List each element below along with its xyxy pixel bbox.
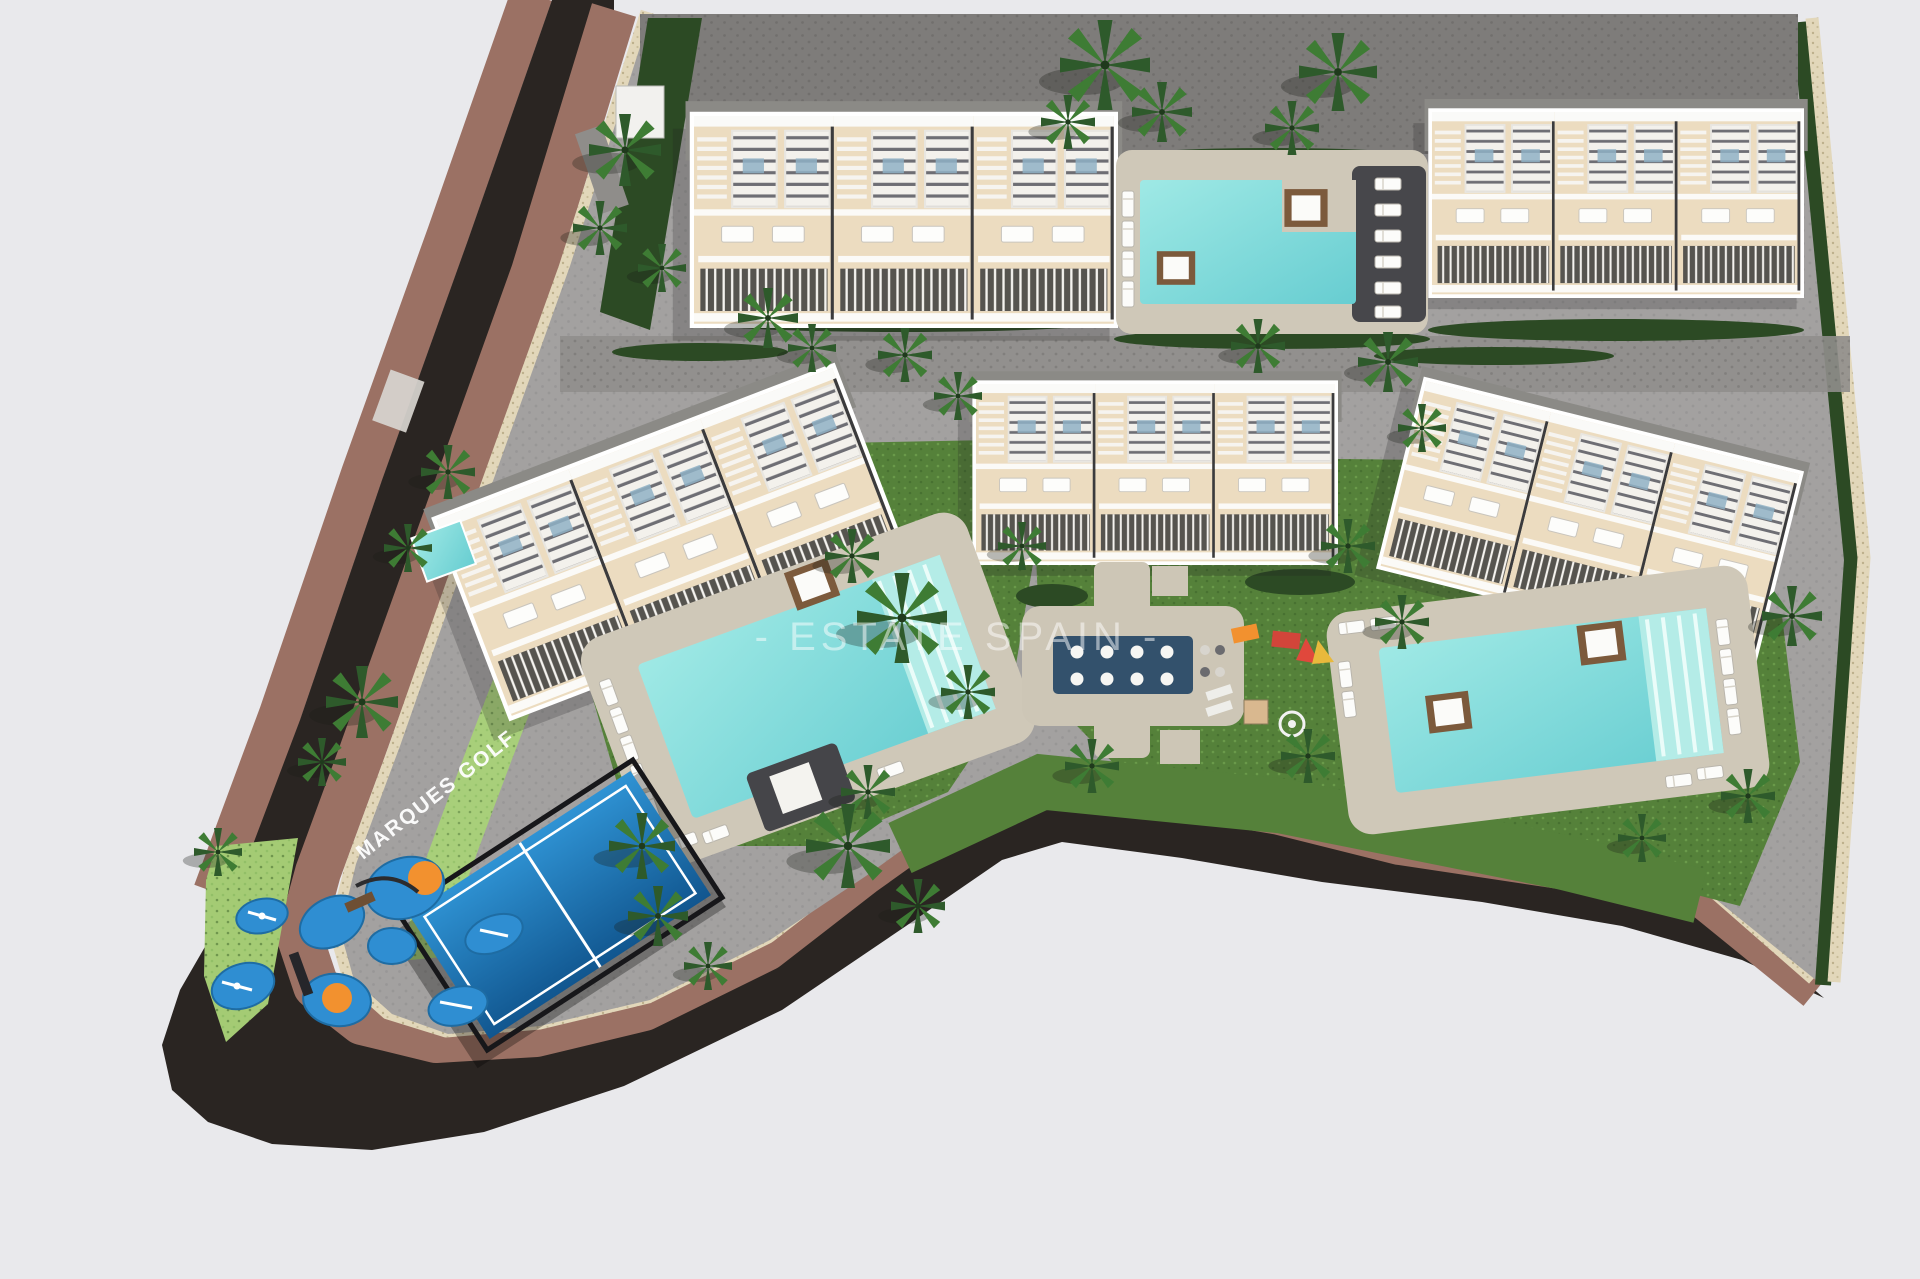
play-circle (322, 983, 352, 1013)
building-block-north-east (1413, 99, 1807, 309)
daybed-icon (1576, 620, 1626, 665)
daybed-icon (1425, 691, 1472, 734)
daybed-icon (1157, 251, 1195, 285)
masterplan-render: MARQUES GOLF - ESTATE SPAIN - (0, 0, 1920, 1279)
daybed-icon (1284, 189, 1327, 227)
site-plan-svg: MARQUES GOLF - ESTATE SPAIN - (0, 0, 1920, 1279)
pool-area-north (1116, 150, 1428, 334)
watermark: - ESTATE SPAIN - (755, 615, 1162, 659)
